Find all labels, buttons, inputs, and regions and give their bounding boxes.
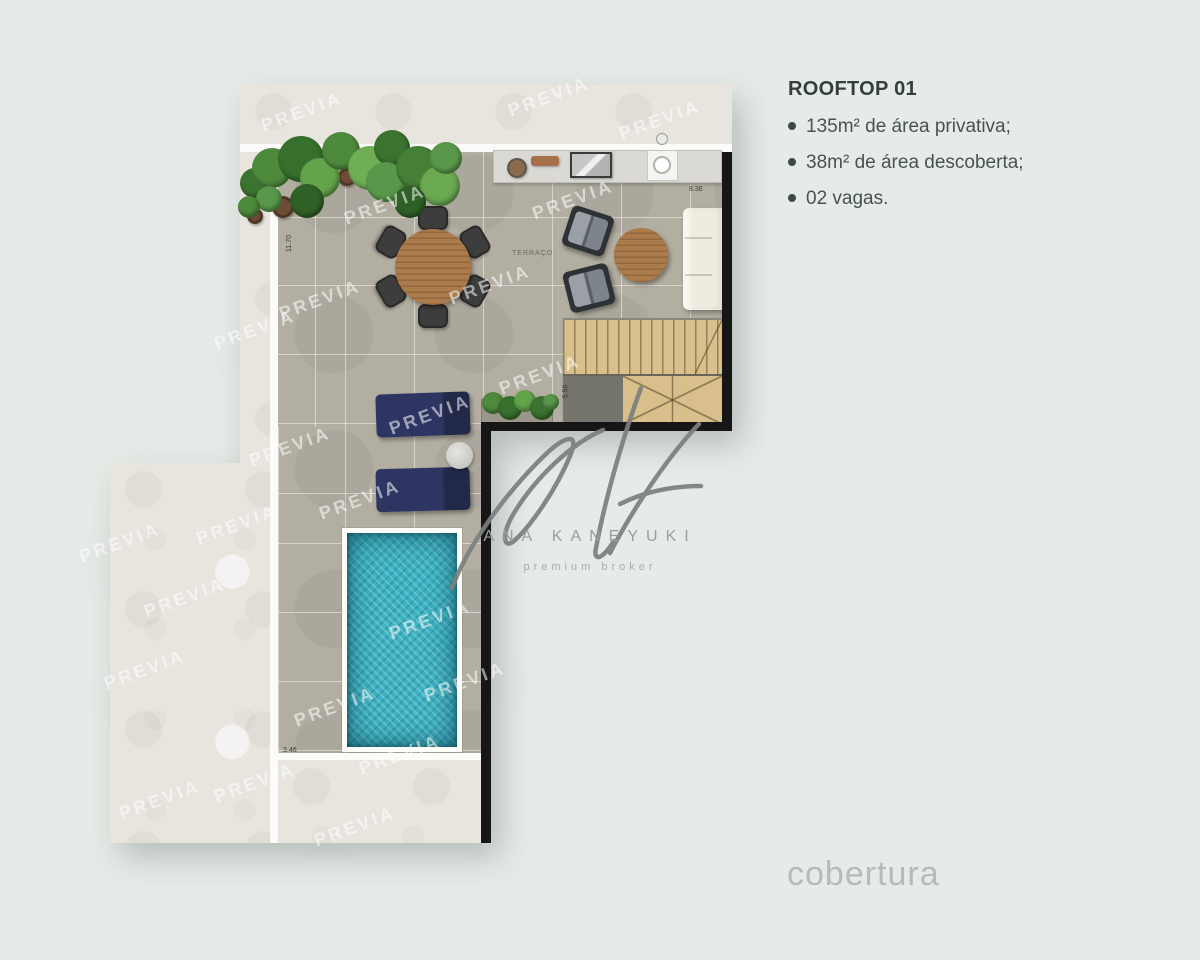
plant-foliage — [238, 196, 260, 218]
page: TERRAÇO 11.708.365.583.46 PREVIAPREVIAPR… — [0, 0, 1200, 960]
info-bullet: 135m² de área privativa; — [788, 113, 1188, 140]
grill — [570, 152, 612, 178]
dining-chair — [418, 304, 448, 328]
bowl — [507, 158, 527, 178]
wall-lower-left — [481, 422, 491, 843]
dimension-label: 5.58 — [562, 385, 569, 399]
dimension-label: 3.46 — [283, 747, 297, 754]
bullet-dot-icon — [788, 194, 796, 202]
slab-bottom-strip — [278, 760, 483, 843]
plant-foliage — [394, 186, 426, 218]
dimension-label: 8.36 — [689, 186, 703, 193]
sink-basin — [653, 156, 671, 174]
brand-name: ANA KANEYUKI — [440, 528, 740, 546]
room-label: TERRAÇO — [512, 250, 553, 257]
wall-right — [722, 152, 732, 431]
faucet-icon — [656, 133, 668, 145]
plant-foliage — [543, 394, 559, 410]
side-table — [446, 442, 473, 469]
parapet-left — [270, 144, 278, 843]
stairs — [563, 318, 722, 422]
stair-landing — [563, 376, 623, 424]
info-title: ROOFTOP 01 — [788, 78, 1188, 101]
info-bullet-text: 38m² de área descoberta; — [806, 149, 1024, 176]
info-bullet: 38m² de área descoberta; — [788, 149, 1188, 176]
slab-lower-left — [110, 463, 270, 843]
info-bullet-text: 02 vagas. — [806, 185, 888, 212]
footer-label: cobertura — [787, 855, 940, 894]
wall-stairs-bottom — [481, 422, 732, 431]
bullet-dot-icon — [788, 122, 796, 130]
sofa — [683, 208, 727, 310]
parapet-bottom — [278, 753, 483, 760]
sun-lounger — [375, 391, 470, 437]
info-bullet: 02 vagas. — [788, 185, 1188, 212]
brand-tagline: premium broker — [440, 561, 740, 573]
dimension-label: 11.70 — [286, 235, 293, 252]
info-bullet-list: 135m² de área privativa;38m² de área des… — [788, 113, 1188, 212]
bullet-dot-icon — [788, 158, 796, 166]
info-panel: ROOFTOP 01 135m² de área privativa;38m² … — [788, 78, 1188, 221]
plant-foliage — [430, 142, 462, 174]
brand-block: ANA KANEYUKI premium broker — [440, 528, 740, 573]
coffee-table — [614, 228, 668, 282]
dining-table — [395, 229, 471, 305]
info-bullet-text: 135m² de área privativa; — [806, 113, 1011, 140]
cutting-board — [531, 156, 559, 166]
sun-lounger — [375, 467, 470, 512]
plant-foliage — [290, 184, 324, 218]
